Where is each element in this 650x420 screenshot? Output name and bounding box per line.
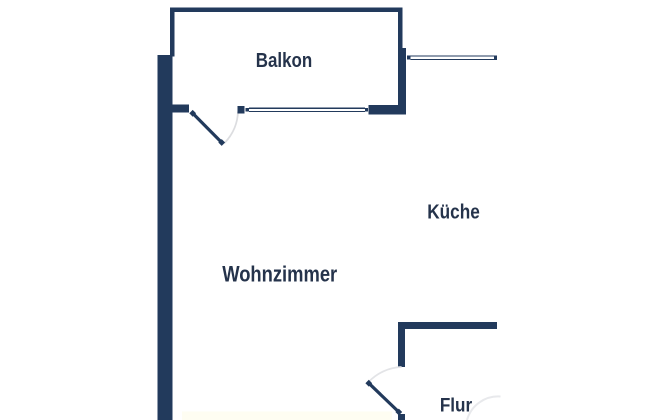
svg-text:Flur: Flur [440, 395, 473, 416]
svg-text:Küche: Küche [427, 202, 480, 224]
svg-text:Wohnzimmer: Wohnzimmer [222, 262, 337, 287]
svg-text:Balkon: Balkon [256, 50, 313, 72]
